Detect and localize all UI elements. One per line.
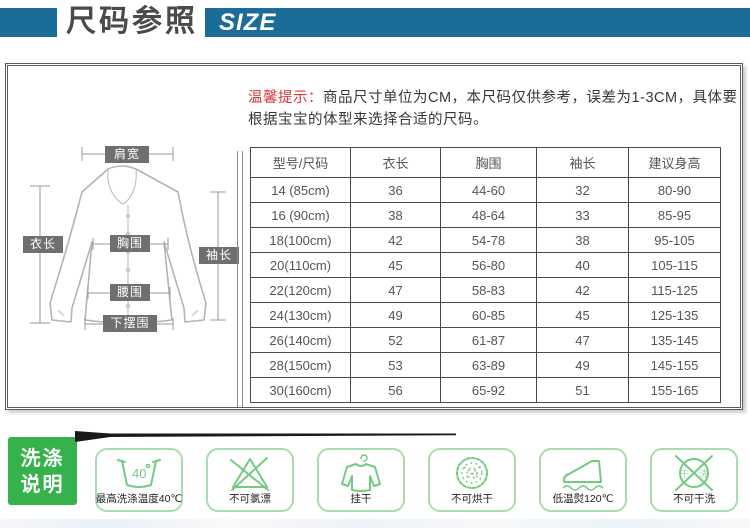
table-cell: 56 [351, 378, 441, 403]
table-cell: 28(150cm) [251, 353, 351, 378]
table-cell: 105-115 [629, 253, 721, 278]
page-title: 尺码参照 [66, 5, 198, 41]
table-cell: 42 [537, 278, 629, 303]
no-tumble-dry-icon [444, 453, 500, 493]
col-header-height: 建议身高 [629, 148, 721, 178]
table-cell: 56-80 [441, 253, 537, 278]
size-table-body: 14 (85cm)3644-603280-9016 (90cm)3848-643… [251, 178, 721, 403]
table-cell: 85-95 [629, 203, 721, 228]
table-row: 18(100cm)4254-783895-105 [251, 228, 721, 253]
header-accent-block [0, 8, 57, 37]
size-chart-panel: 肩宽 衣长 胸围 袖长 腰围 下摆围 温馨提示：商品尺寸单位为CM，本尺码仅供参… [5, 63, 743, 410]
wash-label: 不可烘干 [416, 491, 528, 506]
table-cell: 32 [537, 178, 629, 203]
table-cell: 145-155 [629, 353, 721, 378]
table-cell: 44-60 [441, 178, 537, 203]
table-row: 16 (90cm)3848-643385-95 [251, 203, 721, 228]
size-table: 型号/尺码 衣长 胸围 袖长 建议身高 14 (85cm)3644-603280… [250, 147, 721, 403]
chest-label: 胸围 [110, 235, 150, 252]
table-cell: 60-85 [441, 303, 537, 328]
header-bar: SIZE [205, 8, 750, 37]
col-header-chest: 胸围 [441, 148, 537, 178]
table-cell: 22(120cm) [251, 278, 351, 303]
table-cell: 49 [351, 303, 441, 328]
arrow-line [74, 428, 466, 444]
table-row: 24(130cm)4960-8545125-135 [251, 303, 721, 328]
table-cell: 47 [351, 278, 441, 303]
table-cell: 30(160cm) [251, 378, 351, 403]
table-row: 28(150cm)5363-8949145-155 [251, 353, 721, 378]
wash-card-max-temp: 40 最高洗涤温度40℃ [95, 448, 183, 512]
table-cell: 51 [537, 378, 629, 403]
iron-low-temp-icon [555, 453, 611, 493]
wash-card-iron-low: 低温熨120℃ [539, 448, 627, 512]
table-cell: 58-83 [441, 278, 537, 303]
garment-length-label: 衣长 [23, 236, 63, 253]
wash-card-no-bleach: 不可氯漂 [206, 448, 294, 512]
svg-text:洗: 洗 [699, 468, 708, 479]
table-cell: 54-78 [441, 228, 537, 253]
svg-text:40: 40 [132, 466, 146, 481]
no-dry-clean-icon: 干 洗 [666, 453, 722, 493]
table-cell: 47 [537, 328, 629, 353]
table-row: 14 (85cm)3644-603280-90 [251, 178, 721, 203]
table-cell: 45 [351, 253, 441, 278]
table-cell: 40 [537, 253, 629, 278]
table-cell: 61-87 [441, 328, 537, 353]
warm-tip-prefix: 温馨提示： [248, 90, 323, 106]
table-cell: 115-125 [629, 278, 721, 303]
hang-dry-icon [333, 453, 389, 493]
wash-label: 挂干 [305, 491, 417, 506]
table-header-row: 型号/尺码 衣长 胸围 袖长 建议身高 [251, 148, 721, 178]
table-cell: 63-89 [441, 353, 537, 378]
col-header-length: 衣长 [351, 148, 441, 178]
size-reference-page: 尺码参照 SIZE [0, 0, 750, 530]
wash-instructions-title: 洗涤 说明 [8, 437, 77, 505]
col-header-sleeve: 袖长 [537, 148, 629, 178]
wash-card-no-tumble-dry: 不可烘干 [428, 448, 516, 512]
table-row: 22(120cm)4758-8342115-125 [251, 278, 721, 303]
table-cell: 53 [351, 353, 441, 378]
table-cell: 38 [537, 228, 629, 253]
table-cell: 135-145 [629, 328, 721, 353]
table-cell: 36 [351, 178, 441, 203]
header-size-label: SIZE [219, 8, 276, 37]
table-cell: 125-135 [629, 303, 721, 328]
table-cell: 14 (85cm) [251, 178, 351, 203]
table-cell: 95-105 [629, 228, 721, 253]
waist-label: 腰围 [110, 284, 150, 301]
wash-card-hang-dry: 挂干 [317, 448, 405, 512]
wash-label: 低温熨120℃ [527, 491, 639, 506]
wash-label: 不可干洗 [638, 491, 750, 506]
table-row: 26(140cm)5261-8747135-145 [251, 328, 721, 353]
table-cell: 16 (90cm) [251, 203, 351, 228]
sleeve-length-label: 袖长 [199, 247, 239, 264]
bottom-strip [0, 519, 750, 528]
table-cell: 38 [351, 203, 441, 228]
warm-tip: 温馨提示：商品尺寸单位为CM，本尺码仅供参考，误差为1-3CM，具体要根据宝宝的… [248, 87, 740, 131]
table-cell: 26(140cm) [251, 328, 351, 353]
table-cell: 155-165 [629, 378, 721, 403]
table-cell: 80-90 [629, 178, 721, 203]
table-cell: 42 [351, 228, 441, 253]
table-cell: 52 [351, 328, 441, 353]
svg-text:干: 干 [680, 469, 689, 479]
panel-divider [237, 151, 243, 407]
table-cell: 65-92 [441, 378, 537, 403]
wash-basin-40-icon: 40 [111, 453, 167, 493]
table-cell: 48-64 [441, 203, 537, 228]
table-row: 20(110cm)4556-8040105-115 [251, 253, 721, 278]
no-bleach-icon [222, 453, 278, 493]
wash-card-no-dry-clean: 干 洗 不可干洗 [650, 448, 738, 512]
table-cell: 49 [537, 353, 629, 378]
table-cell: 24(130cm) [251, 303, 351, 328]
wash-label: 最高洗涤温度40℃ [83, 491, 195, 506]
table-cell: 45 [537, 303, 629, 328]
col-header-model-size: 型号/尺码 [251, 148, 351, 178]
table-row: 30(160cm)5665-9251155-165 [251, 378, 721, 403]
table-cell: 18(100cm) [251, 228, 351, 253]
table-cell: 20(110cm) [251, 253, 351, 278]
hem-label: 下摆围 [103, 315, 157, 332]
table-cell: 33 [537, 203, 629, 228]
wash-label: 不可氯漂 [194, 491, 306, 506]
shoulder-width-label: 肩宽 [105, 146, 149, 163]
